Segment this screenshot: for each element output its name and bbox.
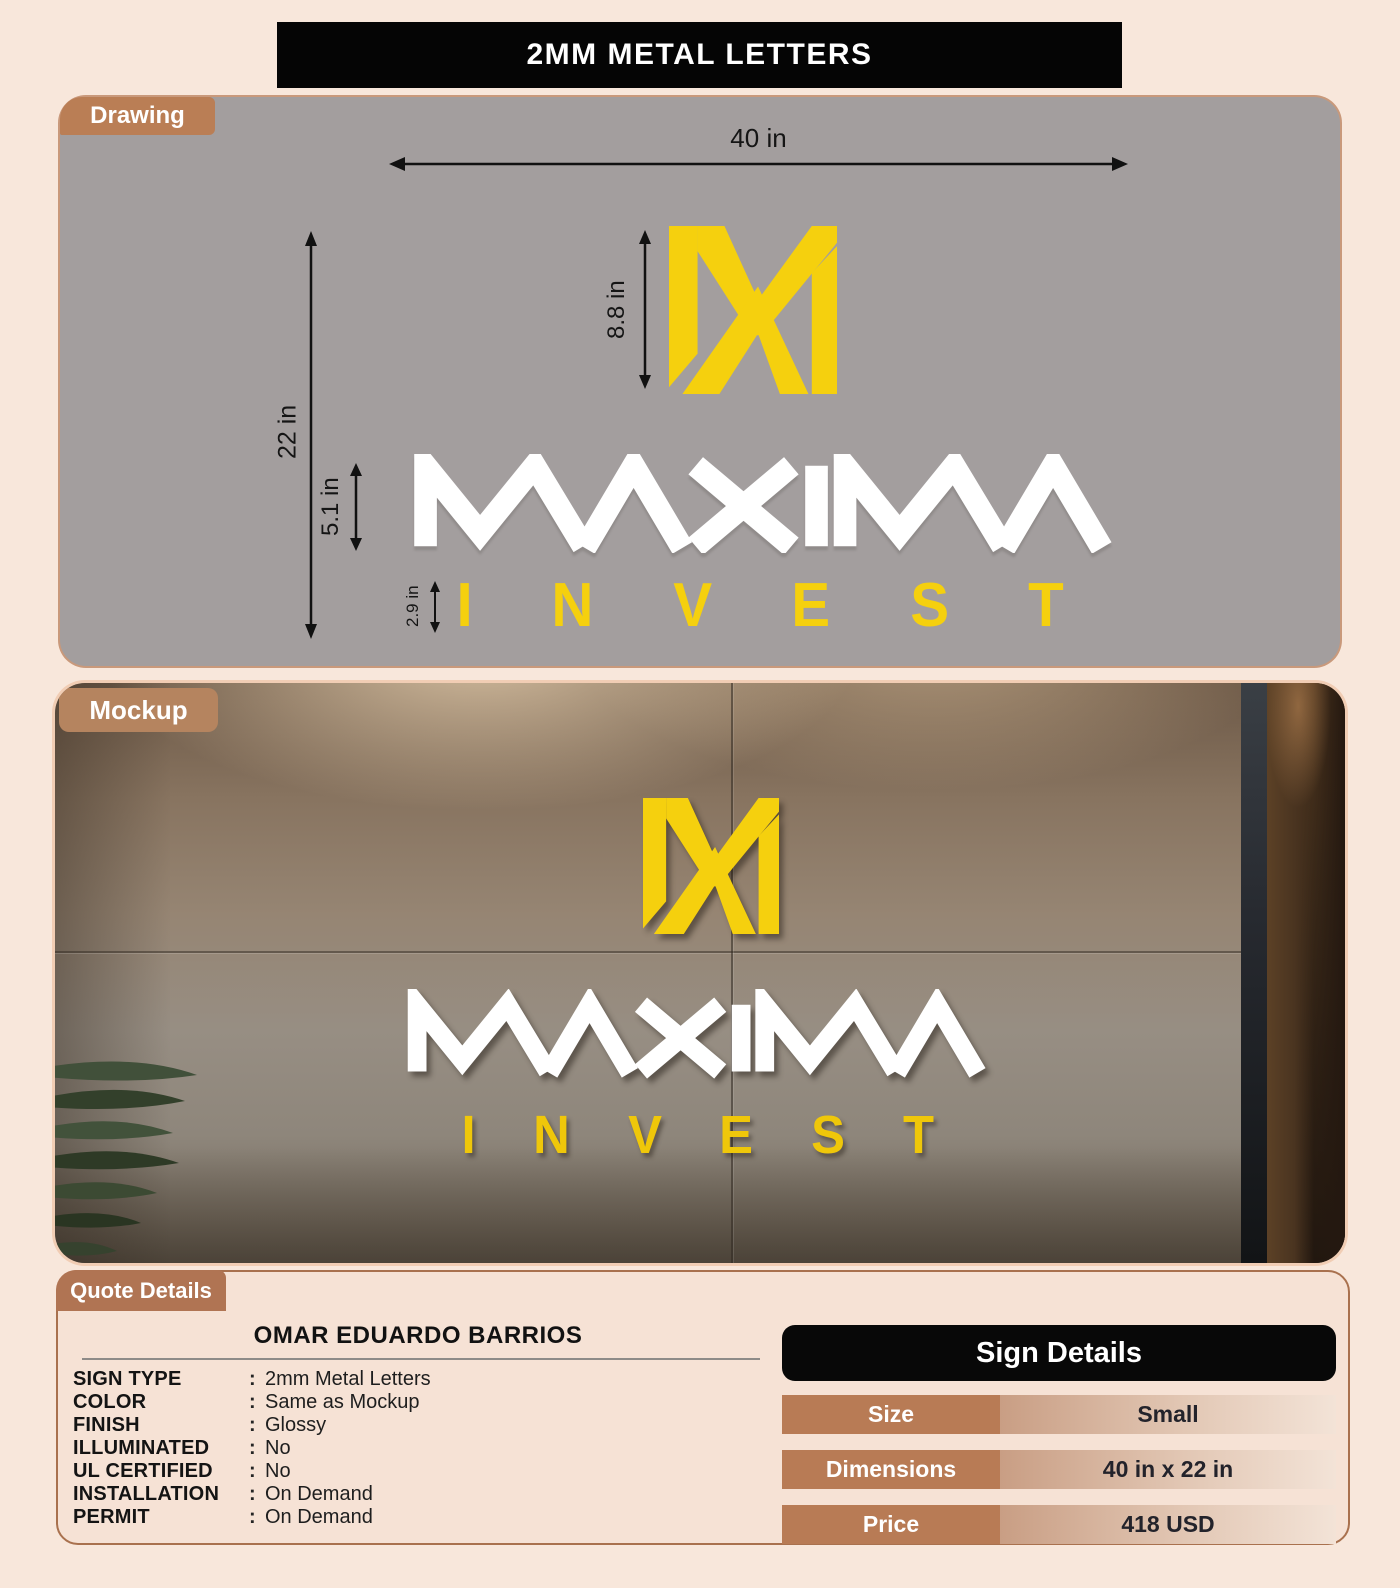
dim-logo-arrow-icon xyxy=(637,230,653,389)
quote-field-row: INSTALLATION : On Demand xyxy=(73,1483,763,1506)
mockup-invest-subtext: INVEST xyxy=(461,1111,935,1159)
wall-seam-horizontal xyxy=(55,951,1241,953)
letter: T xyxy=(1028,581,1064,631)
quote-field-colon: : xyxy=(249,1460,265,1483)
sign-details-table: Sign Details Size Small Dimensions 40 in… xyxy=(782,1325,1336,1544)
quote-field-value: Glossy xyxy=(265,1414,763,1437)
drawing-panel: Drawing 40 in 22 in 8.8 in 5.1 in xyxy=(60,97,1340,666)
quote-details-tab: Quote Details xyxy=(56,1270,226,1311)
quote-sheet: 2MM METAL LETTERS Drawing 40 in 22 in 8.… xyxy=(0,0,1400,1588)
dim-subtext-height-label: 2.9 in xyxy=(400,577,426,635)
quote-field-label: COLOR xyxy=(73,1391,249,1414)
dim-width-arrow-icon xyxy=(389,153,1128,175)
mockup-panel: INVEST Mockup xyxy=(55,683,1345,1263)
mockup-tab: Mockup xyxy=(59,688,218,732)
dim-wordmark-height-label: 5.1 in xyxy=(316,463,346,551)
quote-field-row: ILLUMINATED : No xyxy=(73,1437,763,1460)
quote-field-value: On Demand xyxy=(265,1483,763,1506)
quote-field-colon: : xyxy=(249,1391,265,1414)
quote-field-colon: : xyxy=(249,1483,265,1506)
mockup-logo-mark xyxy=(643,790,779,942)
maxima-logo-mark xyxy=(669,226,837,394)
wall-dark-strip xyxy=(1241,683,1267,1263)
quote-details-panel: Quote Details OMAR EDUARDO BARRIOS SIGN … xyxy=(56,1270,1350,1545)
quote-field-value: 2mm Metal Letters xyxy=(265,1368,763,1391)
wall-seam-vertical xyxy=(731,683,733,1263)
invest-subtext: INVEST xyxy=(456,581,1065,631)
page-title: 2MM METAL LETTERS xyxy=(277,22,1122,88)
sign-details-row-value: Small xyxy=(1000,1395,1336,1434)
wall-lighting xyxy=(55,683,1345,1263)
maxima-wordmark xyxy=(389,454,1140,553)
dim-height-arrow-icon xyxy=(303,231,319,639)
sign-details-row: Dimensions 40 in x 22 in xyxy=(782,1450,1336,1489)
quote-field-colon: : xyxy=(249,1506,265,1529)
quote-field-colon: : xyxy=(249,1437,265,1460)
letter: S xyxy=(910,581,949,631)
wood-column xyxy=(1267,683,1345,1263)
letter: E xyxy=(792,581,831,631)
divider xyxy=(82,1358,760,1360)
quote-field-colon: : xyxy=(249,1368,265,1391)
quote-field-label: SIGN TYPE xyxy=(73,1368,249,1391)
letter: N xyxy=(552,581,594,631)
quote-field-row: FINISH : Glossy xyxy=(73,1414,763,1437)
dim-wordmark-arrow-icon xyxy=(348,463,364,551)
quote-field-value: Same as Mockup xyxy=(265,1391,763,1414)
sign-details-header: Sign Details xyxy=(782,1325,1336,1381)
mockup-wordmark xyxy=(406,989,990,1083)
letter: I xyxy=(457,581,473,631)
quote-field-colon: : xyxy=(249,1414,265,1437)
dim-width-label: 40 in xyxy=(389,123,1128,154)
quote-field-row: UL CERTIFIED : No xyxy=(73,1460,763,1483)
letter: V xyxy=(673,581,712,631)
drawing-tab: Drawing xyxy=(60,97,215,135)
sign-details-rows: Size Small Dimensions 40 in x 22 in Pric… xyxy=(782,1395,1336,1544)
sign-details-row-value: 40 in x 22 in xyxy=(1000,1450,1336,1489)
quote-field-value: No xyxy=(265,1460,763,1483)
quote-field-label: FINISH xyxy=(73,1414,249,1437)
sign-details-row: Price 418 USD xyxy=(782,1505,1336,1544)
quote-field-label: PERMIT xyxy=(73,1506,249,1529)
quote-field-value: No xyxy=(265,1437,763,1460)
sign-details-row: Size Small xyxy=(782,1395,1336,1434)
plant-leaves xyxy=(55,1051,219,1263)
quote-fields: SIGN TYPE : 2mm Metal Letters COLOR : Sa… xyxy=(73,1368,763,1529)
customer-name: OMAR EDUARDO BARRIOS xyxy=(58,1322,778,1350)
letter: N xyxy=(533,1111,570,1159)
quote-field-row: COLOR : Same as Mockup xyxy=(73,1391,763,1414)
letter: T xyxy=(903,1111,934,1159)
dim-logo-height-label: 8.8 in xyxy=(602,230,632,389)
quote-field-label: INSTALLATION xyxy=(73,1483,249,1506)
quote-field-row: SIGN TYPE : 2mm Metal Letters xyxy=(73,1368,763,1391)
letter: V xyxy=(628,1111,662,1159)
quote-field-label: ILLUMINATED xyxy=(73,1437,249,1460)
dim-height-label: 22 in xyxy=(273,382,303,482)
sign-details-row-label: Dimensions xyxy=(782,1450,1000,1489)
letter: S xyxy=(811,1111,845,1159)
quote-field-row: PERMIT : On Demand xyxy=(73,1506,763,1529)
quote-field-value: On Demand xyxy=(265,1506,763,1529)
sign-details-row-label: Size xyxy=(782,1395,1000,1434)
quote-field-label: UL CERTIFIED xyxy=(73,1460,249,1483)
sign-details-row-value: 418 USD xyxy=(1000,1505,1336,1544)
dim-subtext-arrow-icon xyxy=(428,581,442,633)
sign-details-row-label: Price xyxy=(782,1505,1000,1544)
letter: I xyxy=(461,1111,475,1159)
letter: E xyxy=(719,1111,753,1159)
